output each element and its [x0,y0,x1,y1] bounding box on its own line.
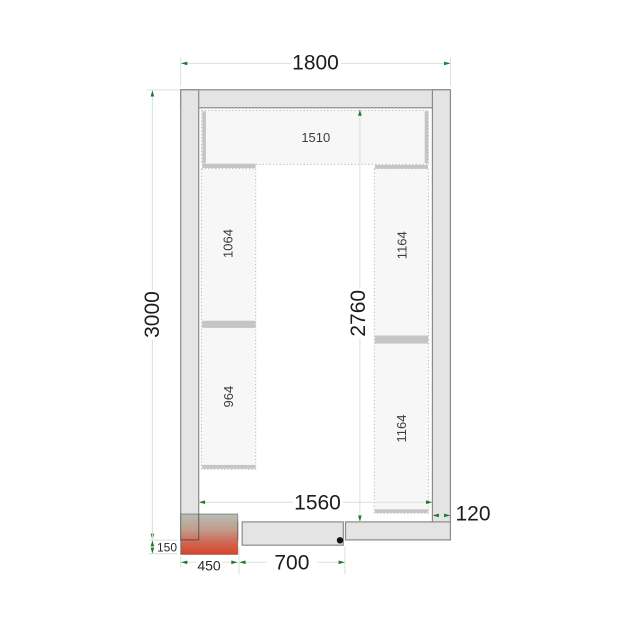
svg-text:1164: 1164 [394,231,409,259]
svg-text:450: 450 [197,557,221,573]
svg-text:1800: 1800 [292,51,339,74]
svg-text:964: 964 [221,386,236,408]
svg-text:3000: 3000 [141,291,164,338]
svg-text:1510: 1510 [301,130,330,145]
svg-text:2760: 2760 [347,290,370,337]
svg-text:120: 120 [456,503,491,526]
svg-text:700: 700 [274,551,309,574]
svg-text:1560: 1560 [294,491,341,514]
svg-text:1064: 1064 [221,229,236,258]
svg-text:1164: 1164 [394,415,409,443]
svg-text:150: 150 [157,540,177,554]
